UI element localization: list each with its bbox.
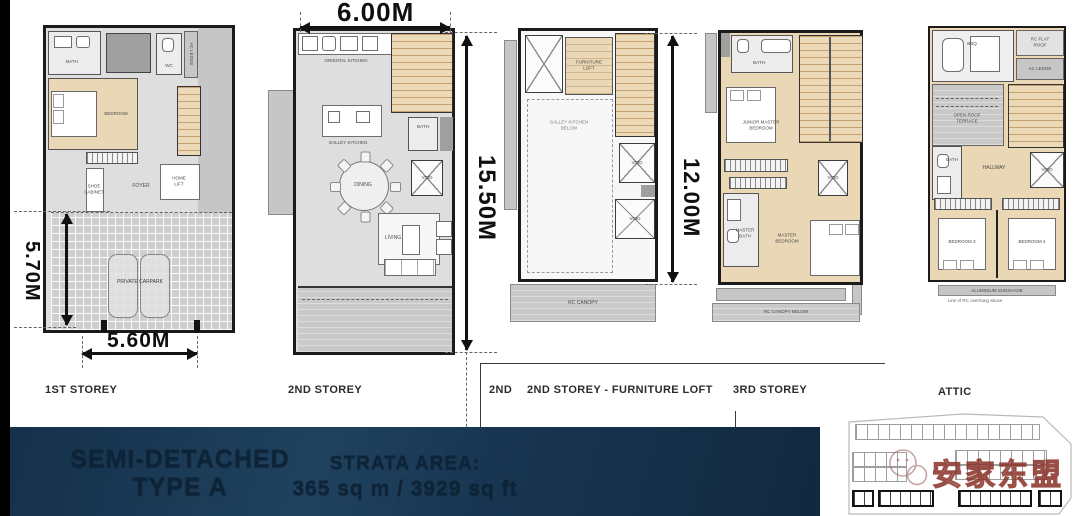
chair xyxy=(379,158,394,173)
watermark-brand: 安家东盟 xyxy=(932,450,1064,494)
callout-edge xyxy=(480,363,885,364)
pillow xyxy=(53,94,64,108)
strata-area-label: STRATA AREA: xyxy=(280,453,530,475)
dim-arrow-5-60 xyxy=(82,352,197,355)
storey-label-2nd-prefix: 2ND xyxy=(489,384,512,396)
chair xyxy=(330,182,341,192)
ext-line xyxy=(645,284,697,285)
dim-label-5-70: 5.70M xyxy=(20,241,43,302)
planter-ledge xyxy=(268,90,295,215)
bath-label: BATH xyxy=(946,157,958,163)
foyer-label: FOYER xyxy=(132,183,149,189)
banner-title-line1: SEMI-DETACHED xyxy=(55,445,305,474)
appliance xyxy=(362,36,378,51)
staircase xyxy=(1008,84,1064,148)
staircase xyxy=(391,33,453,113)
bedroom-label: BEDROOM xyxy=(104,111,127,117)
armchair xyxy=(436,239,452,255)
ext-line xyxy=(466,352,467,437)
stair-divider xyxy=(829,37,831,141)
kitchen-top-label: ORIENTAL KITCHEN xyxy=(324,58,367,64)
void-label: VOID xyxy=(827,175,838,181)
bedroom-4-label: BEDROOM 4 xyxy=(1018,239,1045,245)
coffee-table xyxy=(402,225,420,255)
staircase xyxy=(799,35,863,143)
ext-line xyxy=(450,12,451,32)
kitchen-below-label: GALLEY KITCHEN BELOW xyxy=(550,119,588,130)
island-hob xyxy=(356,111,370,123)
bedroom-divider xyxy=(996,210,998,278)
ext-line xyxy=(645,33,697,34)
master-bath-label: MASTER BATH xyxy=(736,227,755,238)
vanity xyxy=(54,36,72,48)
wardrobe xyxy=(934,198,992,210)
wardrobe xyxy=(1002,198,1060,210)
shoe-cabinet-label: SHOE CABINET xyxy=(84,183,104,194)
void-label: VOID xyxy=(421,175,432,181)
ext-line xyxy=(197,336,198,368)
riser-shaft xyxy=(721,33,730,57)
storey-label-furniture-loft: 2ND STOREY - FURNITURE LOFT xyxy=(527,384,713,396)
furniture-loft-label: FURNITURE LOFT xyxy=(576,59,602,70)
chair xyxy=(336,158,351,173)
junior-master-label: JUNIOR MASTER BEDROOM xyxy=(743,119,780,130)
bbq-grill xyxy=(942,38,964,72)
pillow xyxy=(1030,260,1044,270)
void-label: VOID xyxy=(1041,167,1052,173)
home-lift-label: HOME LIFT xyxy=(172,175,186,186)
rc-flat-roof-label: RC FLAT ROOF xyxy=(1028,36,1052,47)
pillow xyxy=(943,260,957,270)
bath-label: BATH xyxy=(753,60,765,66)
dim-arrow-6-00 xyxy=(300,26,450,29)
void-label: VOID xyxy=(629,216,640,222)
left-edge-bar xyxy=(0,0,10,516)
rc-canopy-below-label: RC CANOPY BELOW xyxy=(764,309,808,315)
dim-label-5-60: 5.60M xyxy=(107,329,170,353)
void-label: VOID xyxy=(631,160,642,166)
pillow xyxy=(845,224,859,235)
dim-arrow-12-00 xyxy=(671,36,674,282)
chair xyxy=(390,182,401,192)
bbq-label: BBQ xyxy=(967,41,977,47)
master-bedroom-label: MASTER BEDROOM xyxy=(775,232,798,243)
dim-label-6-00: 6.00M xyxy=(337,0,414,28)
kitchen-label: GALLEY KITCHEN xyxy=(329,140,367,146)
plan-attic: BBQ RC FLAT ROOF AC LEDGE OPEN ROOF TERR… xyxy=(928,26,1066,282)
dim-label-15-50: 15.50M xyxy=(472,155,500,241)
ext-line xyxy=(445,32,497,33)
armchair xyxy=(436,221,452,237)
storey-label-2nd: 2ND STOREY xyxy=(288,384,362,396)
living-label: LIVING xyxy=(385,235,401,241)
ext-line xyxy=(445,352,497,353)
wc-fixture xyxy=(76,36,90,48)
strata-area-value: 365 sq m / 3929 sq ft xyxy=(255,477,555,501)
staircase xyxy=(177,86,201,156)
wc-bowl xyxy=(162,38,174,52)
ac-ledge-label: AC LEDGE xyxy=(188,43,194,66)
riser-shaft xyxy=(641,185,655,197)
staircase xyxy=(615,33,655,137)
rc-sunshade xyxy=(716,288,846,301)
plan-furniture-loft: FURNITURE LOFT GALLEY KITCHEN BELOW VOID… xyxy=(518,28,658,282)
chair xyxy=(360,212,370,223)
ext-line xyxy=(300,12,301,32)
car-1 xyxy=(108,254,138,318)
callout-edge xyxy=(480,363,481,437)
chair xyxy=(336,201,351,216)
pillow xyxy=(960,260,974,270)
ac-ledge-label: AC LEDGE xyxy=(1029,66,1052,72)
plan-2nd-storey: ORIENTAL KITCHEN GALLEY KITCHEN BATH VOI… xyxy=(293,28,455,355)
rc-ledge xyxy=(705,33,717,113)
rc-ledge xyxy=(504,40,517,210)
wardrobe xyxy=(86,152,138,164)
ext-line xyxy=(14,211,110,212)
site-units-row xyxy=(855,424,1040,440)
bath-room xyxy=(408,117,438,151)
storey-label-attic: ATTIC xyxy=(938,386,972,398)
sink xyxy=(322,36,336,51)
carpark-boundary xyxy=(51,212,232,213)
pillow xyxy=(53,110,64,124)
hob xyxy=(340,36,358,51)
gate-post xyxy=(194,320,200,332)
sunshade-label: ALUMINIUM SUNSHADE xyxy=(971,288,1023,294)
floorplan-sheet: BEDROOM BATH WC AC LEDGE SHOE CABINET FO… xyxy=(0,0,1080,516)
rc-canopy-label: RC CANOPY xyxy=(568,300,598,306)
void-area xyxy=(525,35,563,93)
terrace-line xyxy=(936,106,998,107)
terrace xyxy=(298,286,452,352)
dim-arrow-5-70 xyxy=(65,214,68,325)
wc-bowl xyxy=(737,39,749,53)
wardrobe xyxy=(729,177,787,189)
pillow xyxy=(747,90,761,101)
pillow xyxy=(829,224,843,235)
car-2 xyxy=(140,254,170,318)
ext-line xyxy=(14,327,76,328)
dim-label-12-00: 12.00M xyxy=(678,158,704,237)
shelter-room xyxy=(106,33,151,73)
type-banner: SEMI-DETACHED TYPE A STRATA AREA: 365 sq… xyxy=(10,427,820,516)
pillow xyxy=(730,90,744,101)
appliance xyxy=(302,36,318,51)
island-sink xyxy=(328,111,340,123)
chair xyxy=(360,152,370,163)
storey-label-3rd: 3RD STOREY xyxy=(733,384,807,396)
storey-label-1st: 1ST STOREY xyxy=(45,384,117,396)
terrace-line xyxy=(302,299,448,300)
bath-label: BATH xyxy=(417,124,429,130)
site-units-highlighted xyxy=(852,490,874,507)
terrace-line xyxy=(936,98,998,99)
hallway-label: HALLWAY xyxy=(983,165,1006,171)
dining-label: DINING xyxy=(354,182,372,188)
ext-line xyxy=(82,336,83,368)
vanity xyxy=(727,199,741,221)
sofa xyxy=(384,259,436,276)
rc-overhang-note: Line of RC overhang above xyxy=(948,298,1003,304)
tub xyxy=(761,39,791,53)
bath-label: BATH xyxy=(66,59,78,65)
vanity xyxy=(937,176,951,194)
wardrobe xyxy=(724,159,788,172)
carpark-label: PRIVATE CARPARK xyxy=(117,279,163,285)
open-roof-terrace-label: OPEN ROOF TERRACE xyxy=(953,112,980,123)
plan-1st-storey: BEDROOM BATH WC AC LEDGE SHOE CABINET FO… xyxy=(43,25,235,333)
bedroom-3-label: BEDROOM 3 xyxy=(948,239,975,245)
wechat-logo-icon xyxy=(885,444,929,494)
pillow xyxy=(1013,260,1027,270)
dim-arrow-15-50 xyxy=(465,36,468,350)
riser-shaft xyxy=(440,117,453,151)
plan-3rd-storey: BATH JUNIOR MASTER BEDROOM VOID MASTER B… xyxy=(718,30,863,285)
wc-label: WC xyxy=(165,63,173,69)
